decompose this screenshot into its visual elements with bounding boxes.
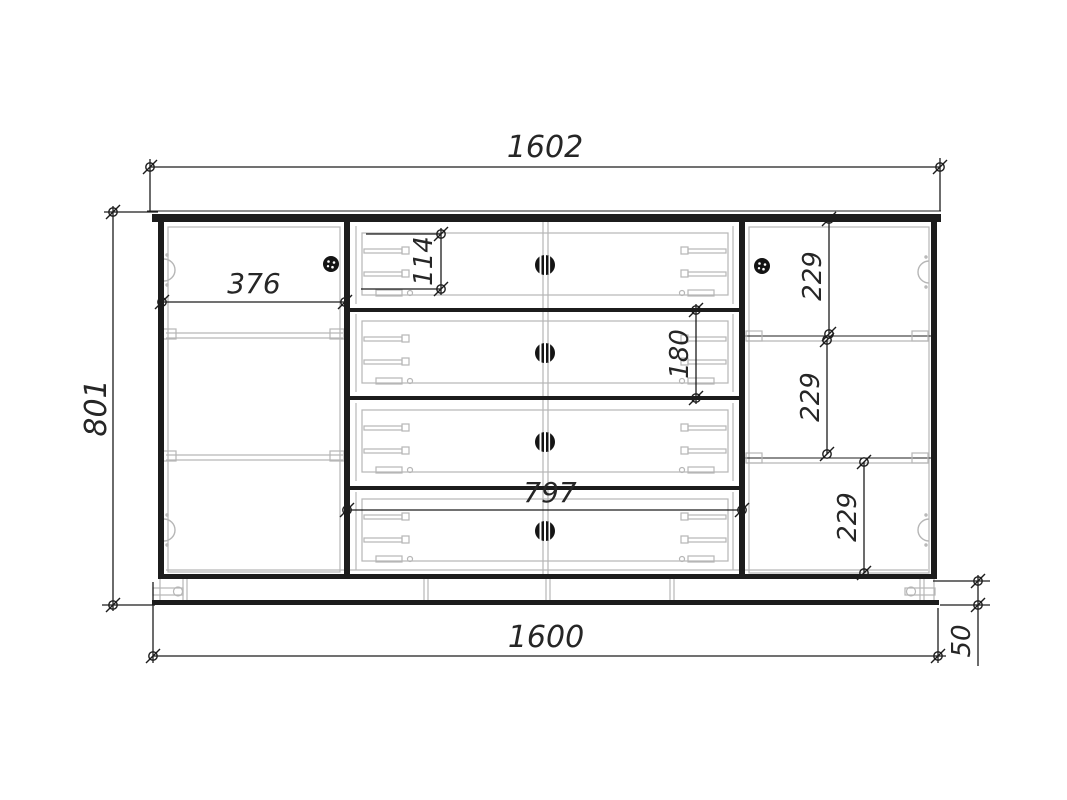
dim-drawer-side-height: 114: [361, 227, 448, 296]
leg-icon: [670, 579, 674, 600]
plinth-base: [152, 600, 939, 605]
drawer-separator-2: [344, 396, 745, 400]
drawer-2-knob-icon[interactable]: [535, 343, 555, 363]
right-hinge-bottom-icon: [918, 514, 929, 546]
left-shelf-lower: [162, 451, 344, 461]
drawer-3-knob-icon[interactable]: [535, 432, 555, 452]
dim-right-gap-middle: 229: [796, 333, 834, 461]
drawer-1-knob-icon[interactable]: [535, 255, 555, 275]
left-side-panel: [158, 222, 164, 578]
dim-drawer-side-height-label: 114: [409, 236, 439, 286]
right-shelf-lower: [745, 453, 931, 463]
dim-overall-height: 801: [79, 205, 158, 612]
leg-icon: [920, 579, 924, 600]
countertop: [147, 211, 941, 222]
dim-top-width: 1602: [143, 130, 947, 211]
right-side-panel: [931, 222, 937, 578]
plinth: [152, 579, 939, 605]
dim-drawer-section-width-label: 797: [523, 476, 577, 509]
dim-right-gap-middle-label: 229: [796, 372, 826, 422]
right-door-knob-icon[interactable]: [754, 258, 770, 274]
dim-left-section-width-label: 376: [227, 267, 280, 300]
dim-plinth-height-label: 50: [947, 624, 977, 657]
drawer-separator-1: [344, 308, 745, 312]
drawer-4-knob-icon[interactable]: [535, 521, 555, 541]
dim-overall-height-label: 801: [79, 379, 114, 436]
leg-icon: [546, 579, 550, 600]
dim-right-gap-top: 229: [798, 212, 836, 341]
left-hinge-bottom-icon: [164, 514, 175, 546]
dim-right-gap-top-label: 229: [798, 251, 828, 301]
dim-right-gap-bottom: 229: [833, 455, 871, 580]
dim-drawer-front-height: 180: [665, 303, 703, 405]
dim-drawer-front-height-label: 180: [665, 329, 695, 379]
left-hinge-top-icon: [164, 254, 175, 286]
left-shelf-upper: [162, 329, 344, 339]
bottom-panel: [158, 574, 937, 579]
right-shelf-upper: [745, 331, 931, 341]
left-leg-bracket: [153, 587, 183, 596]
dim-drawer-section-width: 797: [340, 476, 749, 517]
dim-left-section-width: 376: [155, 267, 352, 309]
dim-top-width-label: 1602: [507, 130, 583, 165]
dim-body-width-label: 1600: [508, 620, 584, 655]
drawing-sheet: 1602 801 376 114 180: [0, 0, 1067, 800]
dim-right-gap-bottom-label: 229: [833, 492, 863, 542]
leg-icon: [424, 579, 428, 600]
left-door-knob-icon[interactable]: [323, 256, 339, 272]
drawing-canvas: 1602 801 376 114 180: [0, 0, 1067, 800]
right-hinge-top-icon: [918, 256, 929, 288]
leg-icon: [183, 579, 187, 600]
